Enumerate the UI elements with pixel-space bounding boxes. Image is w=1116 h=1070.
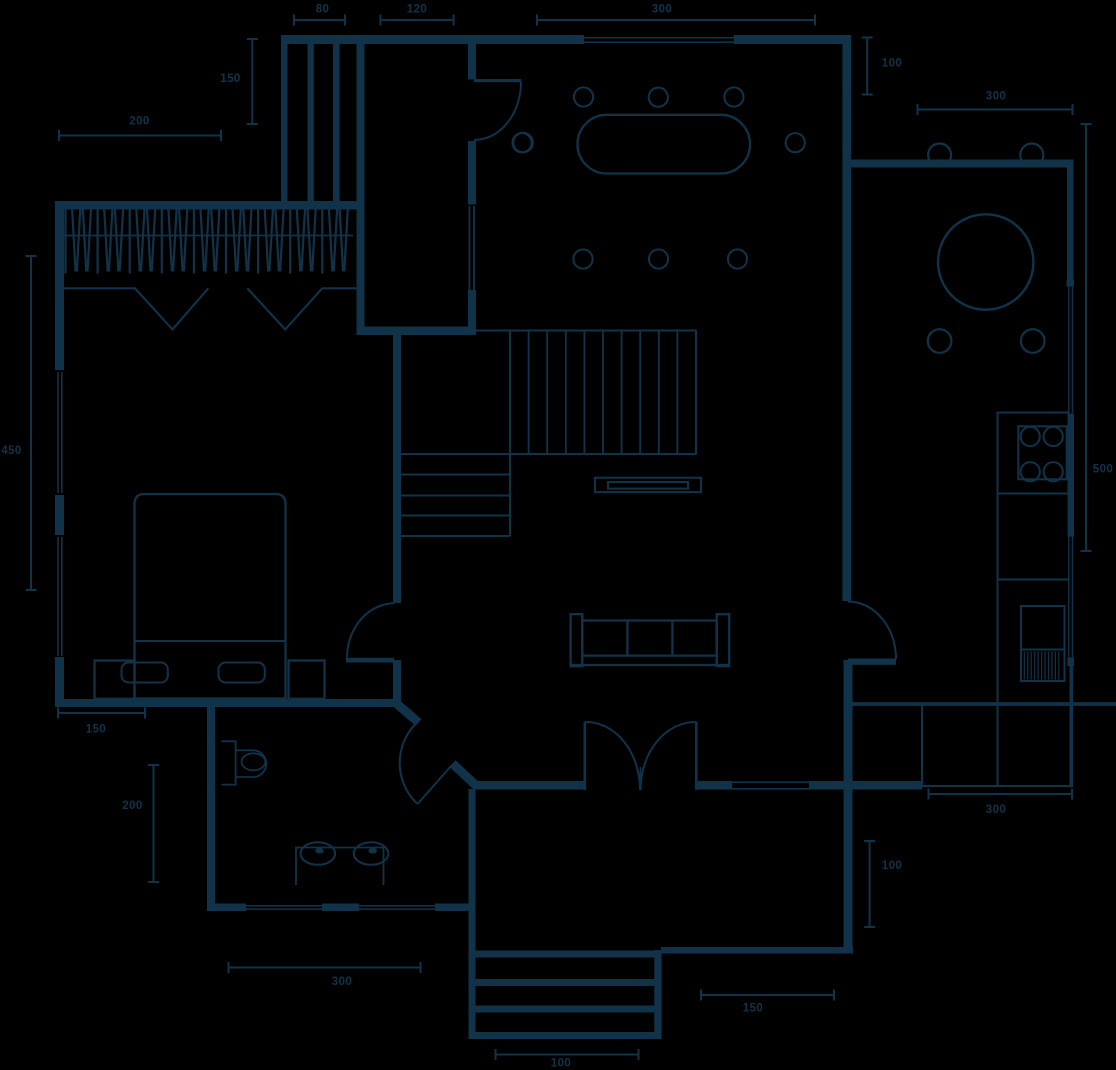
svg-text:100: 100 — [882, 860, 902, 872]
svg-text:200: 200 — [122, 800, 142, 812]
svg-text:150: 150 — [86, 724, 106, 736]
svg-text:300: 300 — [986, 91, 1006, 103]
svg-text:300: 300 — [332, 976, 352, 988]
svg-text:150: 150 — [220, 73, 240, 85]
svg-text:120: 120 — [407, 4, 427, 16]
svg-text:150: 150 — [743, 1003, 763, 1015]
svg-text:80: 80 — [316, 4, 330, 16]
svg-text:300: 300 — [652, 4, 672, 16]
svg-text:500: 500 — [1093, 464, 1113, 476]
svg-text:300: 300 — [986, 804, 1006, 816]
svg-text:200: 200 — [129, 116, 149, 128]
svg-text:450: 450 — [1, 445, 21, 457]
svg-text:100: 100 — [551, 1058, 571, 1070]
svg-text:100: 100 — [882, 58, 902, 70]
